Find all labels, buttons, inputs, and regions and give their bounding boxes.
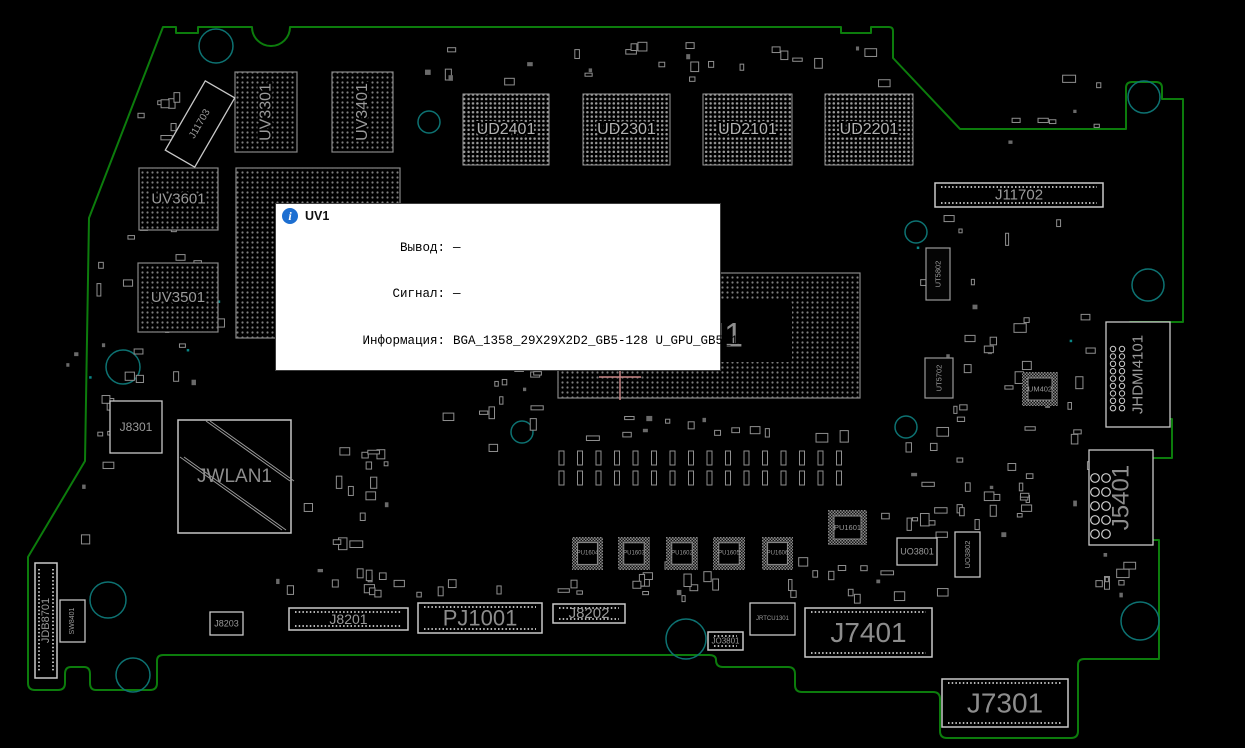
mounting-hole [1128,81,1160,113]
component-label-jrtcu1301: JRTCU1301 [756,616,790,622]
component-label-pu1605: PU1605 [718,551,740,557]
component-jo3801[interactable]: JO3801 [708,632,743,650]
component-label-j11702: J11702 [995,187,1043,204]
component-uv3401[interactable]: UV3401 [332,72,393,152]
component-label-uv3501: UV3501 [151,289,205,306]
component-label-jo3801: JO3801 [711,637,740,646]
component-label-um402: UM402 [1028,385,1052,394]
component-ud2301[interactable]: UD2301 [583,94,670,165]
component-pj1001[interactable]: PJ1001 [418,603,542,633]
component-label-pu1606: PU1606 [767,551,789,557]
component-label-ud2401: UD2401 [477,121,536,138]
component-um402[interactable]: UM402 [1022,372,1058,406]
mounting-hole [1132,269,1164,301]
component-label-sw8401: SW8401 [69,607,76,634]
mounting-hole [199,29,233,63]
board-layer: UV3301UV3401UD2401UD2301UD2101UD2201UV36… [0,0,1245,748]
tooltip-row-value: — [453,287,461,301]
mounting-hole [511,421,533,443]
component-label-ud2201: UD2201 [840,121,899,138]
component-label-jdb8701: JDB8701 [40,598,52,643]
component-jhdmi4101[interactable]: JHDMI4101 [1106,322,1170,427]
component-uo3802[interactable]: UO3802 [955,532,980,577]
tooltip-row-label: Вывод: [327,241,445,257]
component-label-pu1602: PU1602 [671,551,693,557]
component-j8201[interactable]: J8201 [289,608,408,630]
components-layer: UV3301UV3401UD2401UD2301UD2101UD2201UV36… [35,72,1170,727]
component-pu1606[interactable]: PU1606 [762,537,793,570]
component-label-j8301: J8301 [120,420,153,434]
tooltip-row-value: — [453,241,461,255]
mounting-hole [1121,602,1159,640]
component-ud2101[interactable]: UD2101 [703,94,792,165]
component-label-ut5702: UT5702 [935,365,944,392]
tooltip-row-value: BGA_1358_29X29X2D2_GB5-128 U_GPU_GB5_128 [453,334,753,348]
component-pu1601[interactable]: PU1601 [828,510,867,545]
component-label-jhdmi4101: JHDMI4101 [1130,335,1147,414]
component-j7301[interactable]: J7301 [942,679,1068,727]
info-icon: i [282,208,298,224]
component-jdb8701[interactable]: JDB8701 [35,563,57,678]
component-label-j8203: J8203 [214,619,239,629]
mounting-hole [905,221,927,243]
tooltip-row: Сигнал:— [282,272,713,319]
component-label-ud2101: UD2101 [718,121,777,138]
component-pu1602[interactable]: PU1602 [666,537,698,570]
component-ud2401[interactable]: UD2401 [463,94,549,165]
component-ut5802[interactable]: UT5802 [926,248,950,300]
component-label-uv3301: UV3301 [258,83,275,141]
component-label-ud2301: UD2301 [597,121,656,138]
component-ut5702[interactable]: UT5702 [925,358,953,398]
tooltip-title: UV1 [305,209,329,223]
mounting-hole [895,416,917,438]
component-label-ut5802: UT5802 [934,261,943,288]
component-jrtcu1301[interactable]: JRTCU1301 [750,603,795,635]
component-label-jwlan1: JWLAN1 [197,466,272,487]
component-pu1603[interactable]: PU1603 [618,537,650,570]
component-j8301[interactable]: J8301 [110,401,162,453]
tooltip-row: Информация:BGA_1358_29X29X2D2_GB5-128 U_… [282,319,713,366]
component-label-j5401: J5401 [1108,465,1135,530]
component-uv3601[interactable]: UV3601 [139,168,218,230]
mounting-hole [666,619,706,659]
component-uv3501[interactable]: UV3501 [138,263,218,332]
component-label-uv3401: UV3401 [354,83,371,141]
component-j7401[interactable]: J7401 [805,608,932,657]
component-label-uv3601: UV3601 [151,191,205,208]
component-j5401[interactable]: J5401 [1089,450,1153,545]
component-label-j8202: J8202 [569,605,610,622]
component-pu1604[interactable]: PU1604 [572,537,603,570]
component-tooltip: i UV1 Вывод:— Сигнал:— Информация:BGA_13… [275,203,721,371]
component-uo3801[interactable]: UO3801 [897,538,937,565]
component-label-j7301: J7301 [967,688,1043,719]
tooltip-header: i UV1 [282,207,713,225]
component-label-pj1001: PJ1001 [443,606,518,631]
component-sw8401[interactable]: SW8401 [60,600,85,642]
boardview-canvas[interactable]: UV3301UV3401UD2401UD2301UD2101UD2201UV36… [0,0,1245,748]
component-label-uo3802: UO3802 [963,541,972,569]
tooltip-row-label: Сигнал: [327,287,445,303]
tooltip-row-label: Информация: [327,334,445,350]
mounting-hole [116,658,150,692]
component-ud2201[interactable]: UD2201 [825,94,913,165]
component-label-j8201: J8201 [329,611,367,627]
component-label-pu1603: PU1603 [623,551,645,557]
component-j8203[interactable]: J8203 [210,612,243,635]
component-jwlan1[interactable]: JWLAN1 [178,420,294,533]
mounting-hole [90,582,126,618]
component-uv3301[interactable]: UV3301 [235,72,297,152]
tooltip-row: Вывод:— [282,225,713,272]
component-j11702[interactable]: J11702 [935,183,1103,207]
component-j8202[interactable]: J8202 [553,604,625,623]
component-label-pu1601: PU1601 [834,523,861,532]
component-label-pu1604: PU1604 [577,551,599,557]
component-label-j7401: J7401 [830,617,906,648]
mounting-hole [418,111,440,133]
component-label-uo3801: UO3801 [900,547,934,557]
component-pu1605[interactable]: PU1605 [713,537,745,570]
